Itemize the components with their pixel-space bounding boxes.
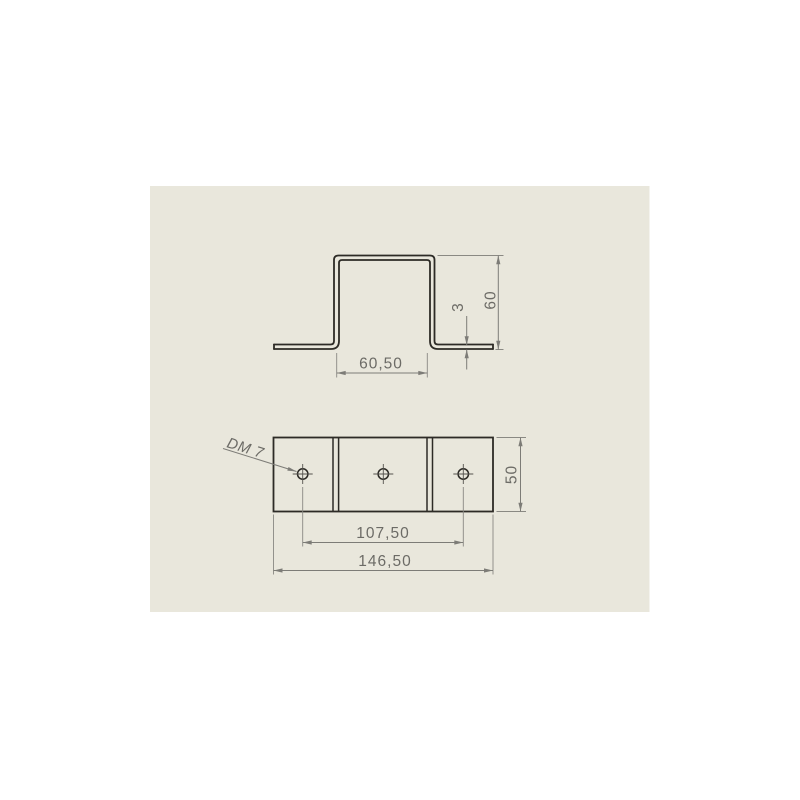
dim-depth-value: 50: [504, 465, 521, 484]
drawing-canvas: 60,50 3 60: [0, 0, 800, 800]
dim-inner-width-value: 60,50: [359, 356, 403, 373]
dim-overall-width-value: 146,50: [358, 553, 411, 570]
dim-thickness-value: 3: [450, 302, 467, 312]
dim-height-value: 60: [483, 290, 500, 309]
dim-hole-spacing-value: 107,50: [356, 525, 409, 542]
technical-drawing: 60,50 3 60: [0, 0, 800, 800]
drawing-sheet: [150, 186, 650, 612]
